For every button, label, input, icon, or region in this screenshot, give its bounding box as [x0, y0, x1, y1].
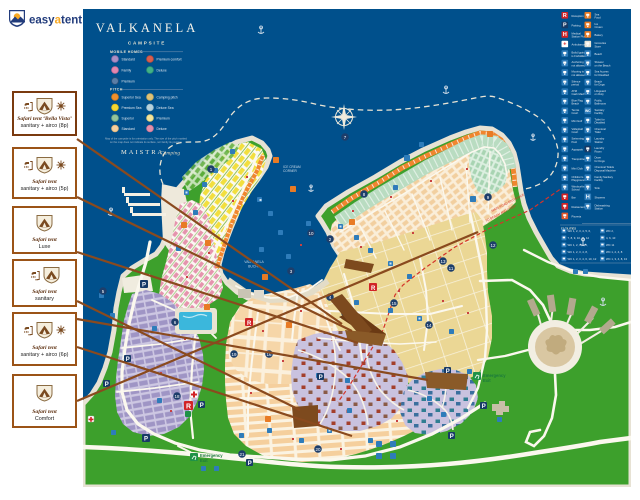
- svg-text:not allowed: not allowed: [572, 63, 586, 67]
- svg-text:11: 11: [449, 266, 454, 271]
- svg-text:Parking: Parking: [572, 24, 582, 28]
- svg-text:Playground: Playground: [572, 178, 586, 182]
- svg-text:Deluxe: Deluxe: [157, 68, 167, 72]
- svg-text:for Dogs: for Dogs: [595, 159, 606, 163]
- svg-text:PITCH: PITCH: [110, 88, 123, 92]
- svg-text:Trampoline: Trampoline: [572, 157, 586, 161]
- svg-text:R: R: [247, 321, 252, 327]
- svg-text:Mini Club: Mini Club: [572, 167, 584, 171]
- svg-text:Standard: Standard: [122, 57, 136, 61]
- svg-text:VALKANELA: VALKANELA: [96, 21, 198, 35]
- svg-text:Premium Sea: Premium Sea: [122, 106, 142, 110]
- svg-text:Exit: Exit: [483, 378, 491, 383]
- svg-text:R: R: [563, 13, 567, 19]
- svg-text:not allowed: not allowed: [572, 73, 586, 77]
- svg-text:Pizzeria: Pizzeria: [572, 215, 582, 219]
- svg-text:Toilet: Toilet: [595, 130, 602, 134]
- svg-text:15: 15: [391, 301, 397, 306]
- svg-text:Family: Family: [122, 68, 132, 72]
- svg-text:School: School: [572, 188, 581, 192]
- svg-text:on Duty: on Duty: [595, 92, 605, 96]
- svg-text:Facility: Facility: [595, 111, 604, 115]
- svg-text:Superior: Superior: [122, 116, 135, 120]
- svg-text:7, 8, 9, 10, 11, 12: 7, 8, 9, 10, 11, 12: [568, 236, 590, 240]
- svg-text:R: R: [371, 286, 376, 292]
- svg-text:Sink: Sink: [595, 186, 601, 190]
- svg-text:WC 1, 2, 3, 4, 8,: WC 1, 2, 3, 4, 8,: [568, 250, 588, 254]
- svg-text:Standard: Standard: [122, 127, 136, 131]
- svg-text:Cream: Cream: [595, 25, 604, 29]
- svg-text:CORNER: CORNER: [283, 169, 298, 173]
- svg-text:Station Plus: Station Plus: [572, 35, 587, 39]
- svg-text:P: P: [482, 404, 486, 410]
- svg-text:for Dogs: for Dogs: [595, 83, 606, 87]
- svg-text:WC 1, 2, 3, 4, 6,: WC 1, 2, 3, 4, 6,: [568, 243, 588, 247]
- svg-text:on the map does not indicate i: on the map does not indicate its surface…: [110, 140, 183, 144]
- svg-text:Mini Golf: Mini Golf: [572, 119, 583, 123]
- svg-text:Pool: Pool: [572, 140, 578, 144]
- svg-text:for Disabled: for Disabled: [595, 73, 610, 77]
- svg-text:R: R: [186, 404, 191, 411]
- svg-text:Premium comfort: Premium comfort: [157, 57, 182, 61]
- svg-text:Room: Room: [595, 149, 603, 153]
- svg-text:P: P: [563, 23, 567, 29]
- svg-text:Premium: Premium: [122, 79, 135, 83]
- svg-text:13: 13: [440, 259, 446, 264]
- svg-text:period: period: [572, 83, 580, 87]
- svg-text:WC 2,: WC 2,: [606, 229, 614, 233]
- svg-text:Aquapark: Aquapark: [572, 148, 584, 152]
- svg-text:20: 20: [315, 447, 321, 452]
- svg-text:Station: Station: [595, 207, 604, 211]
- svg-text:Deluxe Sea: Deluxe Sea: [157, 106, 174, 110]
- svg-text:14: 14: [426, 323, 432, 328]
- svg-text:Beach: Beach: [595, 52, 603, 56]
- svg-text:Disposal Machine: Disposal Machine: [595, 168, 617, 172]
- svg-text:Map of the campsite is for ori: Map of the campsite is for orientation o…: [105, 137, 187, 141]
- svg-text:Bathroom: Bathroom: [595, 102, 607, 106]
- svg-text:P: P: [142, 283, 146, 289]
- svg-text:Superior Sea: Superior Sea: [122, 95, 141, 99]
- svg-text:WC 1, 2, 4, 8: WC 1, 2, 4, 8: [606, 250, 623, 254]
- svg-text:on the Beach: on the Beach: [595, 63, 611, 67]
- svg-text:10: 10: [308, 231, 314, 236]
- svg-text:+: +: [563, 42, 566, 48]
- svg-text:Store: Store: [595, 44, 602, 48]
- svg-text:P: P: [200, 403, 204, 409]
- svg-text:Camping pitch: Camping pitch: [157, 95, 178, 99]
- svg-text:Court: Court: [572, 111, 579, 115]
- svg-text:Showers: Showers: [595, 195, 606, 199]
- svg-text:Bakery: Bakery: [595, 33, 604, 37]
- svg-text:P: P: [319, 375, 323, 381]
- svg-text:H: H: [586, 194, 590, 200]
- svg-text:WC 11: WC 11: [606, 243, 615, 247]
- svg-text:H: H: [563, 32, 567, 38]
- svg-text:18: 18: [174, 394, 180, 399]
- svg-text:WC: WC: [585, 109, 591, 113]
- svg-text:Reception: Reception: [572, 14, 585, 18]
- svg-text:Station: Station: [595, 140, 604, 144]
- svg-text:WC 1, 2, 3, 4, 6, 10, 12: WC 1, 2, 3, 4, 6, 10, 12: [568, 257, 597, 261]
- svg-text:Court: Court: [572, 130, 579, 134]
- svg-text:P: P: [450, 434, 454, 440]
- svg-text:Exit: Exit: [200, 458, 208, 463]
- svg-text:Camping: Camping: [160, 151, 180, 157]
- svg-text:WC 1, 2, 3, 4, 5, 6,: WC 1, 2, 3, 4, 5, 6,: [568, 229, 592, 233]
- svg-text:21: 21: [239, 452, 245, 457]
- svg-text:CAMPSITE: CAMPSITE: [128, 41, 166, 46]
- svg-text:Disabled: Disabled: [595, 121, 606, 125]
- svg-text:WC 1, 3, 4, 8, 13: WC 1, 3, 4, 8, 13: [606, 257, 627, 261]
- svg-text:12: 12: [490, 243, 496, 248]
- svg-text:easyatent: easyatent: [29, 15, 82, 27]
- svg-text:Ambulance: Ambulance: [572, 43, 586, 47]
- svg-text:Beach: Beach: [572, 102, 580, 106]
- svg-text:4, 6, 10: 4, 6, 10: [606, 236, 616, 240]
- svg-text:Deluxe: Deluxe: [157, 127, 167, 131]
- svg-text:Bar: Bar: [572, 195, 576, 199]
- svg-text:19: 19: [231, 352, 237, 357]
- svg-text:Facility: Facility: [595, 178, 604, 182]
- svg-text:P: P: [248, 461, 252, 467]
- svg-text:Restaurant: Restaurant: [572, 205, 585, 209]
- svg-text:Food: Food: [595, 16, 602, 20]
- svg-text:Premium: Premium: [157, 116, 170, 120]
- svg-text:MAISTRA: MAISTRA: [121, 149, 164, 156]
- svg-text:P: P: [144, 437, 148, 443]
